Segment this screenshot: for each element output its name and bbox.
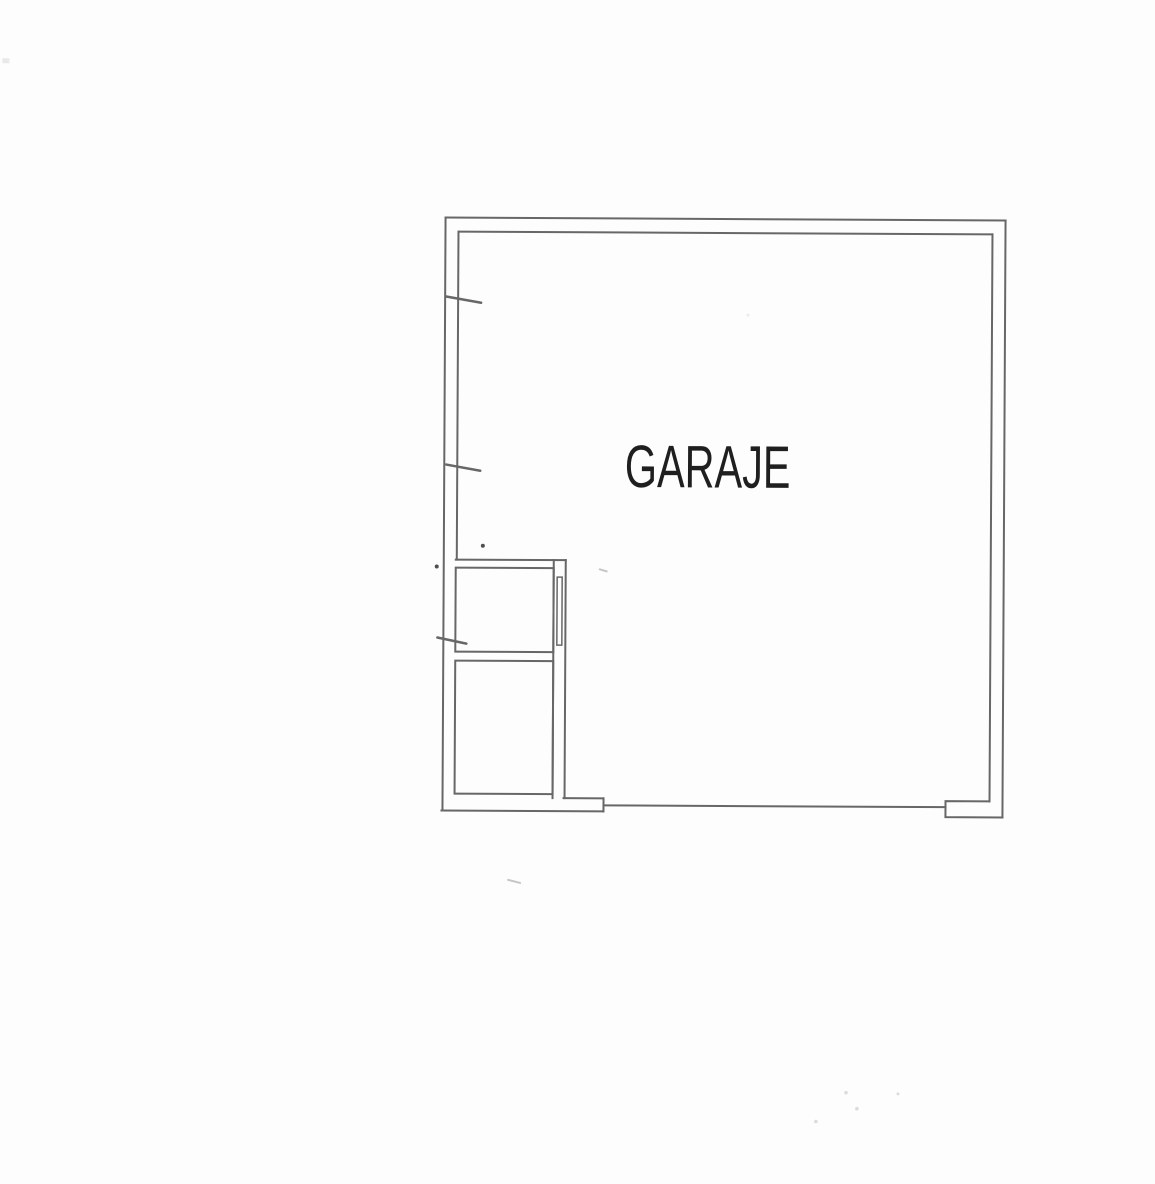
outer-wall-right [1002, 220, 1005, 817]
door-jamb-tab [945, 801, 1002, 817]
pen-dots [435, 543, 485, 568]
garage-door-opening-line [603, 805, 945, 807]
scan-speck-5 [747, 314, 750, 317]
partition-top-cap [456, 560, 566, 561]
inner-wall-top [458, 232, 992, 235]
wall-tick-mark-1 [446, 297, 481, 303]
outer-wall-top [446, 218, 1006, 221]
room-label-garaje: GARAJE [625, 437, 791, 498]
partition-walls [455, 560, 566, 799]
outer-wall-bottom-left [441, 811, 603, 812]
lower-storage-room [455, 661, 554, 795]
scan-edge-smudge [2, 58, 9, 63]
partition-outer-line [565, 560, 566, 798]
wall-tick-mark-3 [437, 638, 466, 644]
scanned-floor-plan-page: GARAJE [0, 0, 1155, 1184]
storage-rooms [455, 568, 554, 795]
inner-wall-right [990, 234, 993, 801]
scan-speck-1 [844, 1091, 848, 1095]
door-leaf [557, 577, 562, 645]
scan-speck-4 [814, 1120, 818, 1124]
outer-and-inner-walls [441, 218, 1005, 818]
pen-dot-1 [481, 544, 485, 548]
wall-tick-mark-2 [446, 465, 480, 471]
floor-plan-drawing [0, 0, 1155, 1184]
faint-dash-near-partition [600, 569, 607, 571]
scan-speck-3 [855, 1107, 859, 1111]
outer-wall-left [442, 218, 445, 811]
scan-speck-2 [896, 1092, 899, 1095]
inner-wall-left [457, 232, 459, 560]
upper-storage-room [455, 568, 553, 653]
plan-tilt-group [0, 58, 1006, 1124]
faint-dash-below-plan [508, 880, 520, 883]
pen-dot-2 [435, 564, 439, 568]
